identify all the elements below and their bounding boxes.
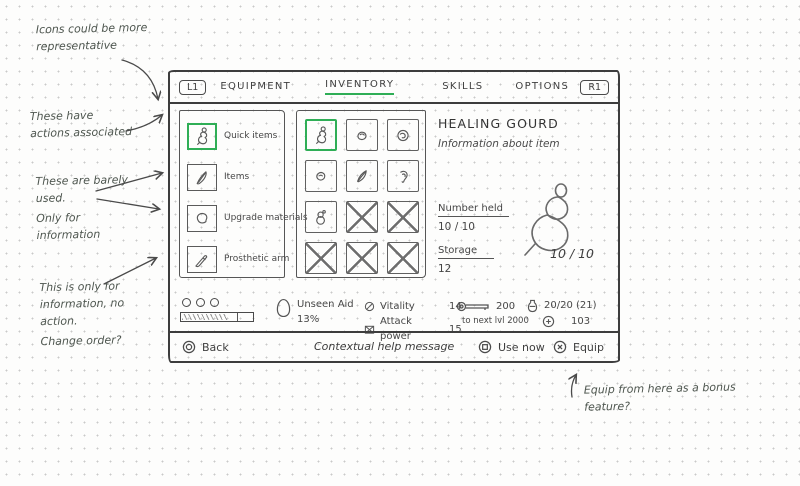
pellet-icon [351, 125, 373, 146]
note-equip-bonus: Equip from here as a bonus feature? [584, 378, 745, 415]
material-icon [187, 205, 217, 232]
sidebar-item-label: Items [224, 172, 249, 182]
sen-coin-icon [542, 315, 555, 328]
health-bar-tick [237, 313, 238, 321]
vitality-label: Vitality [380, 299, 444, 314]
unseen-aid-stat: Unseen Aid 13% [276, 298, 354, 327]
arrow-equip-bonus [572, 375, 577, 397]
number-held-label: Number held [438, 203, 509, 217]
item-grid [296, 110, 426, 278]
circle-button-icon [182, 340, 196, 354]
grid-cell-empty[interactable] [346, 242, 378, 274]
shoulder-button-l1[interactable]: L1 [179, 80, 206, 95]
cross-button-icon [553, 340, 567, 354]
sidebar-item-quick-items[interactable]: Quick items [187, 121, 284, 151]
storage-label: Storage [438, 245, 494, 259]
grid-cell-empty[interactable] [346, 201, 378, 233]
health-gauge [180, 298, 254, 322]
health-bar-fill [182, 314, 227, 320]
note-text: These are barely used. [35, 171, 136, 207]
note-icons-representative: Icons could be more representative [36, 19, 157, 56]
health-bar [180, 312, 254, 322]
grid-cell-gourd[interactable] [305, 119, 337, 151]
contextual-help-message: Contextual help message [314, 340, 454, 353]
note-text: Icons could be more representative [36, 19, 157, 56]
equip-label: Equip [573, 341, 604, 354]
grid-cell-empty[interactable] [387, 242, 419, 274]
sen-value: 103 [571, 316, 590, 327]
sidebar-item-label: Prosthetic arm [224, 254, 289, 264]
grid-cell-round[interactable] [387, 119, 419, 151]
vitality-icon [364, 301, 375, 312]
grid-cell-snowman[interactable] [305, 201, 337, 233]
grid-cell-pellet[interactable] [346, 119, 378, 151]
note-barely-used: These are barely used. Only for informat… [35, 171, 136, 244]
gourd-icon [187, 123, 217, 150]
arm-icon [187, 246, 217, 273]
storage-block: Storage 12 [438, 238, 494, 275]
seed-icon [310, 166, 332, 187]
sidebar-item-prosthetic-arm[interactable]: Prosthetic arm [187, 244, 284, 274]
emblems-value: 20/20 (21) [544, 300, 597, 311]
note-text: Change order? [40, 331, 150, 350]
tab-bar: L1 EQUIPMENT INVENTORY SKILLS OPTIONS R1 [170, 72, 618, 104]
resurrection-nodes [182, 298, 254, 307]
note-info-only: This is only for information, no action.… [39, 277, 150, 350]
footer-bar: Back Contextual help message Use now Equ… [170, 331, 618, 361]
tab-equipment[interactable]: EQUIPMENT [220, 81, 291, 94]
number-held-block: Number held 10 / 10 [438, 196, 509, 233]
emblems-and-sen-stat: 20/20 (21) 103 [526, 298, 597, 328]
use-now-label: Use now [498, 341, 545, 354]
xp-next-label: to next lvl 2000 [462, 316, 529, 326]
unseen-aid-icon [276, 298, 291, 318]
note-text: Only for information [36, 208, 137, 244]
tab-options[interactable]: OPTIONS [515, 81, 569, 94]
arrow-icons-note [122, 60, 158, 99]
unseen-aid-value: 13% [297, 313, 354, 328]
category-sidebar: Quick items Items Upgrade materials Pros… [179, 110, 285, 278]
snowman-icon [310, 207, 332, 228]
item-preview-count: 10 / 10 [550, 246, 594, 261]
sidebar-item-items[interactable]: Items [187, 162, 284, 192]
number-held-value: 10 / 10 [438, 221, 509, 233]
experience-stat: 200 to next lvl 2000 [456, 300, 529, 326]
note-text: This is only for information, no action. [39, 277, 150, 330]
grid-cell-ear[interactable] [387, 160, 419, 192]
item-detail-pane: HEALING GOURD Information about item Num… [438, 116, 616, 281]
back-label: Back [202, 341, 229, 354]
gourd-icon [310, 125, 332, 146]
spirit-emblem-icon [526, 298, 539, 313]
round-icon [392, 125, 414, 146]
inventory-panel: L1 EQUIPMENT INVENTORY SKILLS OPTIONS R1… [168, 70, 620, 363]
sidebar-item-label: Quick items [224, 131, 277, 141]
grid-cell-seed[interactable] [305, 160, 337, 192]
feather-icon [351, 166, 373, 187]
grid-cell-empty[interactable] [387, 201, 419, 233]
item-description: Information about item [438, 138, 616, 150]
grid-cell-empty[interactable] [305, 242, 337, 274]
skill-xp-gauge-icon [456, 300, 492, 313]
square-button-icon [478, 340, 492, 354]
tab-inventory[interactable]: INVENTORY [325, 79, 394, 95]
item-title: HEALING GOURD [438, 116, 616, 131]
shoulder-button-r1[interactable]: R1 [580, 80, 609, 95]
unseen-aid-label: Unseen Aid [297, 298, 354, 313]
use-now-button[interactable]: Use now [478, 340, 545, 354]
note-text: These have actions associated [30, 106, 137, 142]
back-button[interactable]: Back [182, 340, 229, 354]
tab-skills[interactable]: SKILLS [442, 81, 483, 94]
equip-button[interactable]: Equip [553, 340, 604, 354]
grid-cell-feather[interactable] [346, 160, 378, 192]
sidebar-item-upgrade-materials[interactable]: Upgrade materials [187, 203, 284, 233]
note-text: Equip from here as a bonus feature? [584, 378, 745, 415]
storage-value: 12 [438, 263, 494, 275]
knife-icon [187, 164, 217, 191]
ear-icon [392, 166, 414, 187]
note-actions-associated: These have actions associated [30, 106, 137, 142]
xp-value: 200 [496, 301, 515, 312]
